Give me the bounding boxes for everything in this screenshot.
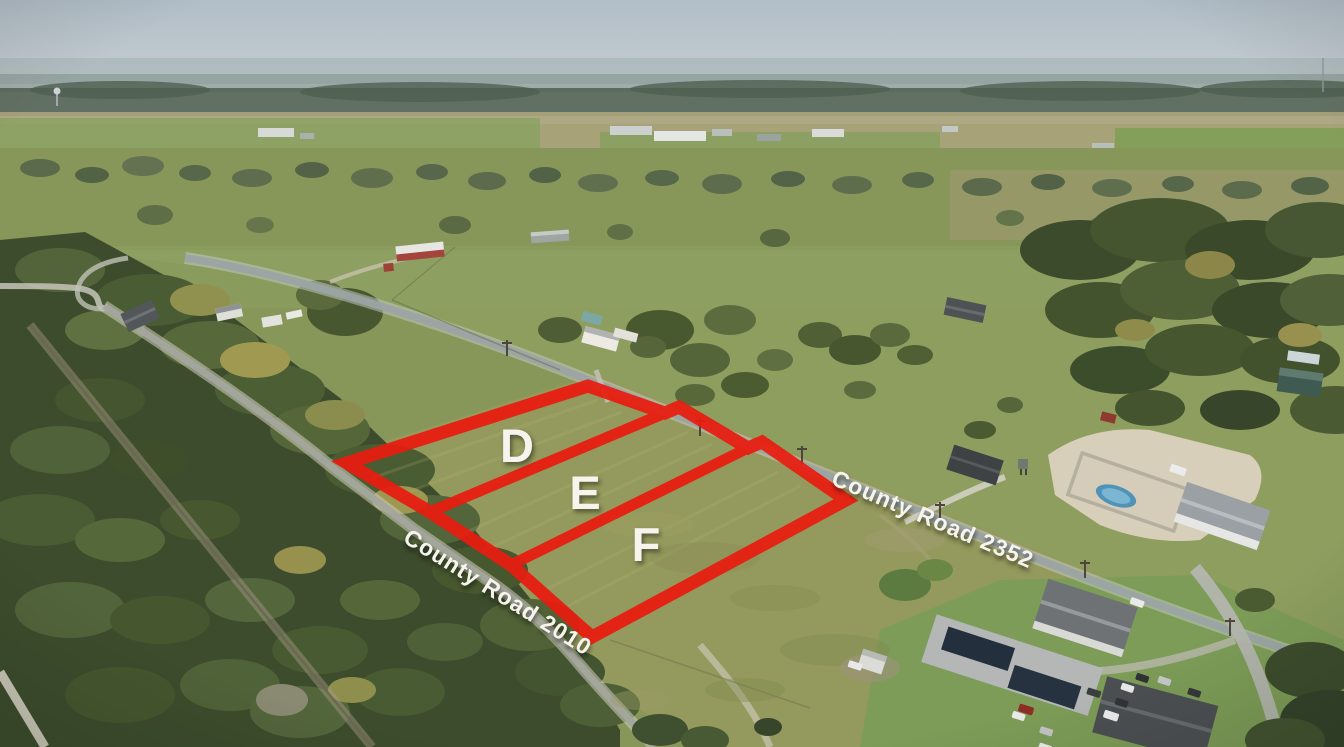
aerial-scene: D E F County Road 2010 County Road 2352 bbox=[0, 0, 1344, 747]
aerial-listing-photo: D E F County Road 2010 County Road 2352 bbox=[0, 0, 1344, 747]
vignette bbox=[0, 0, 1344, 747]
